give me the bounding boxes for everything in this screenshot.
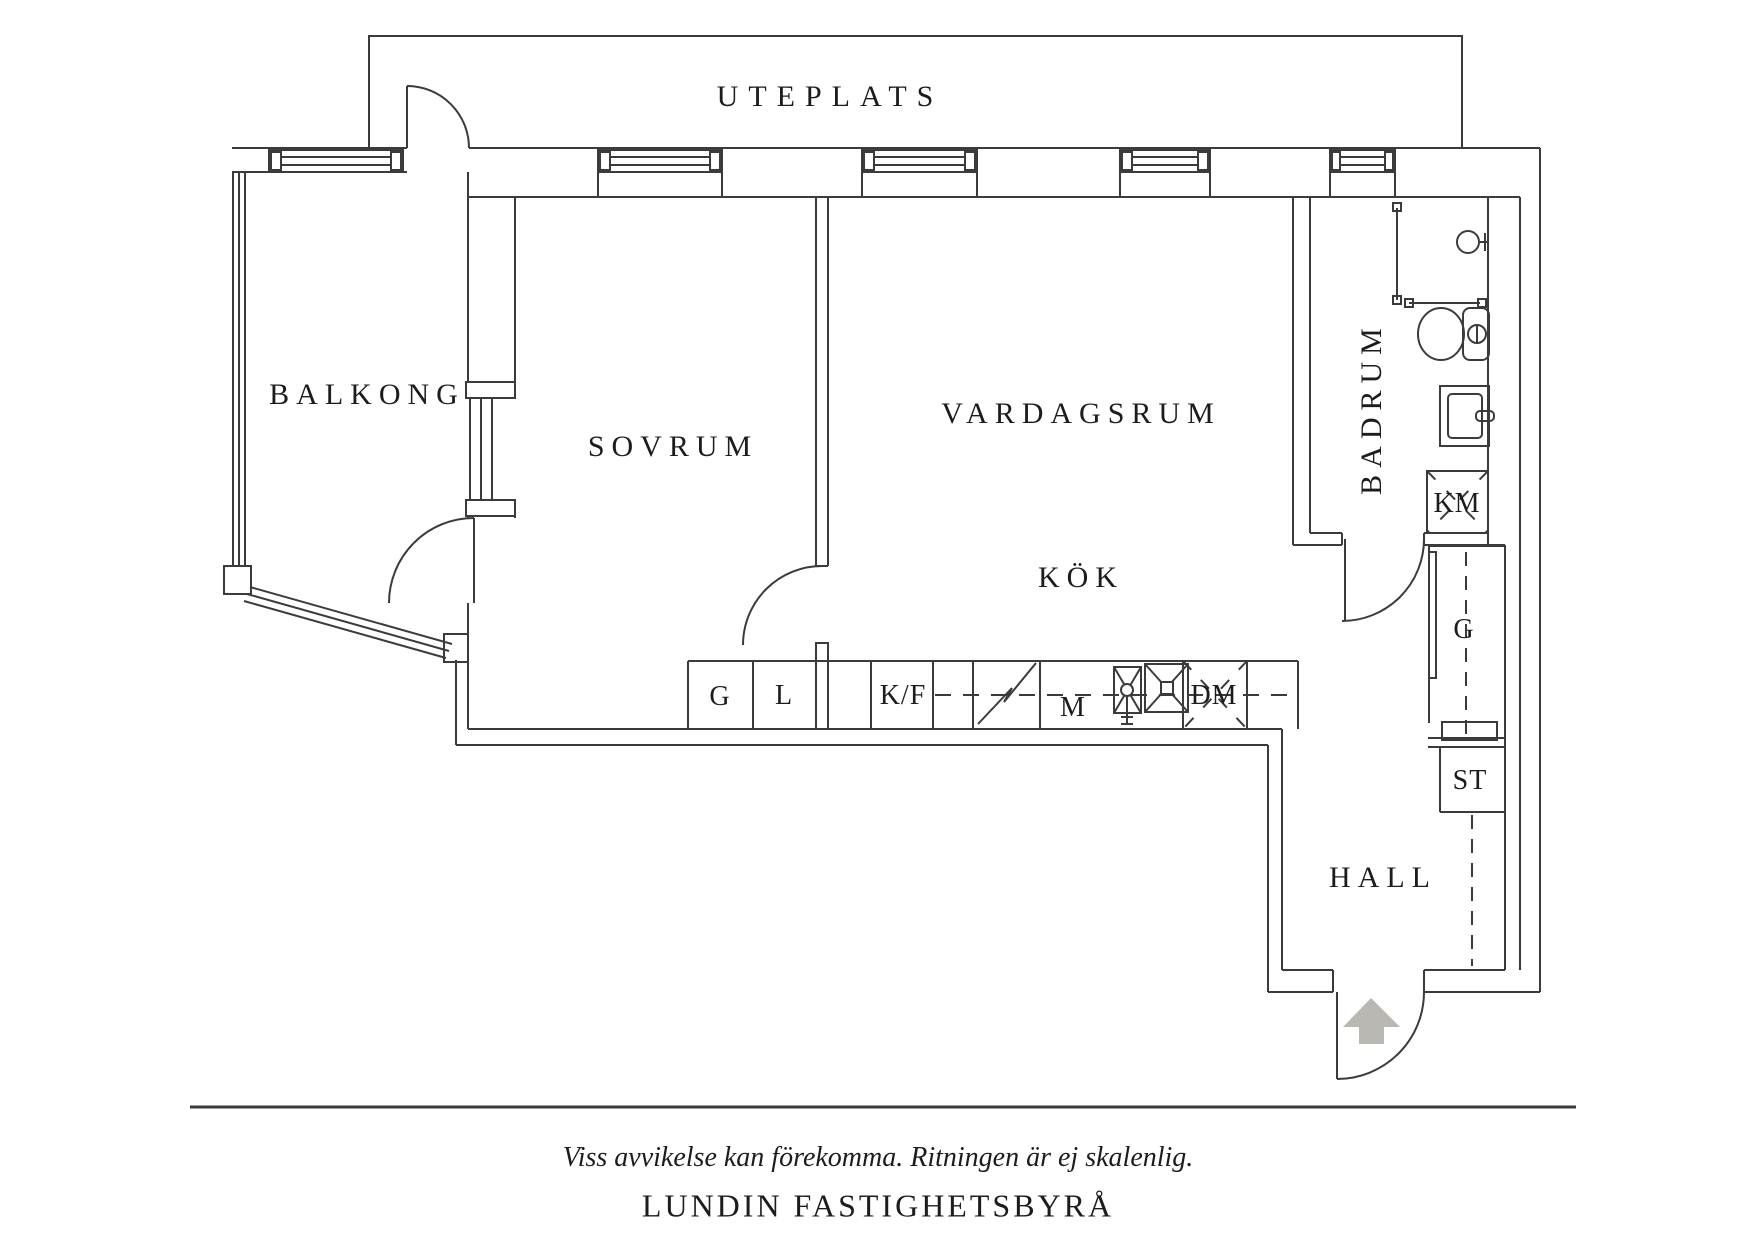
fixture-label-dm: DM xyxy=(1190,682,1237,710)
fixture-label-km: KM xyxy=(1433,490,1480,518)
sovrum-wall xyxy=(816,197,828,661)
fixture-label-linen-l: L xyxy=(775,682,793,710)
footer-disclaimer: Viss avvikelse kan förekomma. Ritningen … xyxy=(563,1142,1194,1174)
balkong-sovrum-wall xyxy=(466,172,515,518)
fixture-label-st: ST xyxy=(1453,767,1488,795)
fixture-label-wardrobe-g: G xyxy=(709,683,730,711)
room-label-vardagsrum: VARDAGSRUM xyxy=(941,399,1221,429)
hall-wardrobe xyxy=(1428,546,1505,747)
footer-brand: LUNDIN FASTIGHETSBYRÅ xyxy=(642,1188,1114,1225)
fixture-label-wardrobe-g2: G xyxy=(1453,616,1474,644)
room-label-balkong: BALKONG xyxy=(269,380,465,410)
balkong-railing xyxy=(224,172,468,662)
stove-icon xyxy=(978,663,1036,724)
door-swing-icon xyxy=(743,566,822,645)
door-swing-icon xyxy=(1342,539,1424,621)
kitchen-sink-icon xyxy=(1114,664,1188,724)
door-swing-icon xyxy=(389,518,474,603)
fixture-label-fridge-kf: K/F xyxy=(880,682,927,710)
window-icon xyxy=(269,148,1395,197)
room-label-badrum: BADRUM xyxy=(1357,321,1387,495)
room-label-uteplats: UTEPLATS xyxy=(717,82,944,112)
floor-plan: UTEPLATS BALKONG SOVRUM VARDAGSRUM KÖK B… xyxy=(0,0,1754,1240)
room-label-hall: HALL xyxy=(1329,863,1437,893)
entrance-arrow-icon xyxy=(1343,998,1400,1044)
toilet-icon xyxy=(1418,308,1489,360)
fixture-label-m: M xyxy=(1060,694,1086,722)
room-label-sovrum: SOVRUM xyxy=(588,432,758,462)
room-label-kok: KÖK xyxy=(1038,563,1124,593)
door-swing-icon xyxy=(407,86,469,148)
shower-icon xyxy=(1393,203,1489,307)
bathroom-sink-icon xyxy=(1440,386,1494,446)
floor-plan-drawing xyxy=(0,0,1754,1240)
